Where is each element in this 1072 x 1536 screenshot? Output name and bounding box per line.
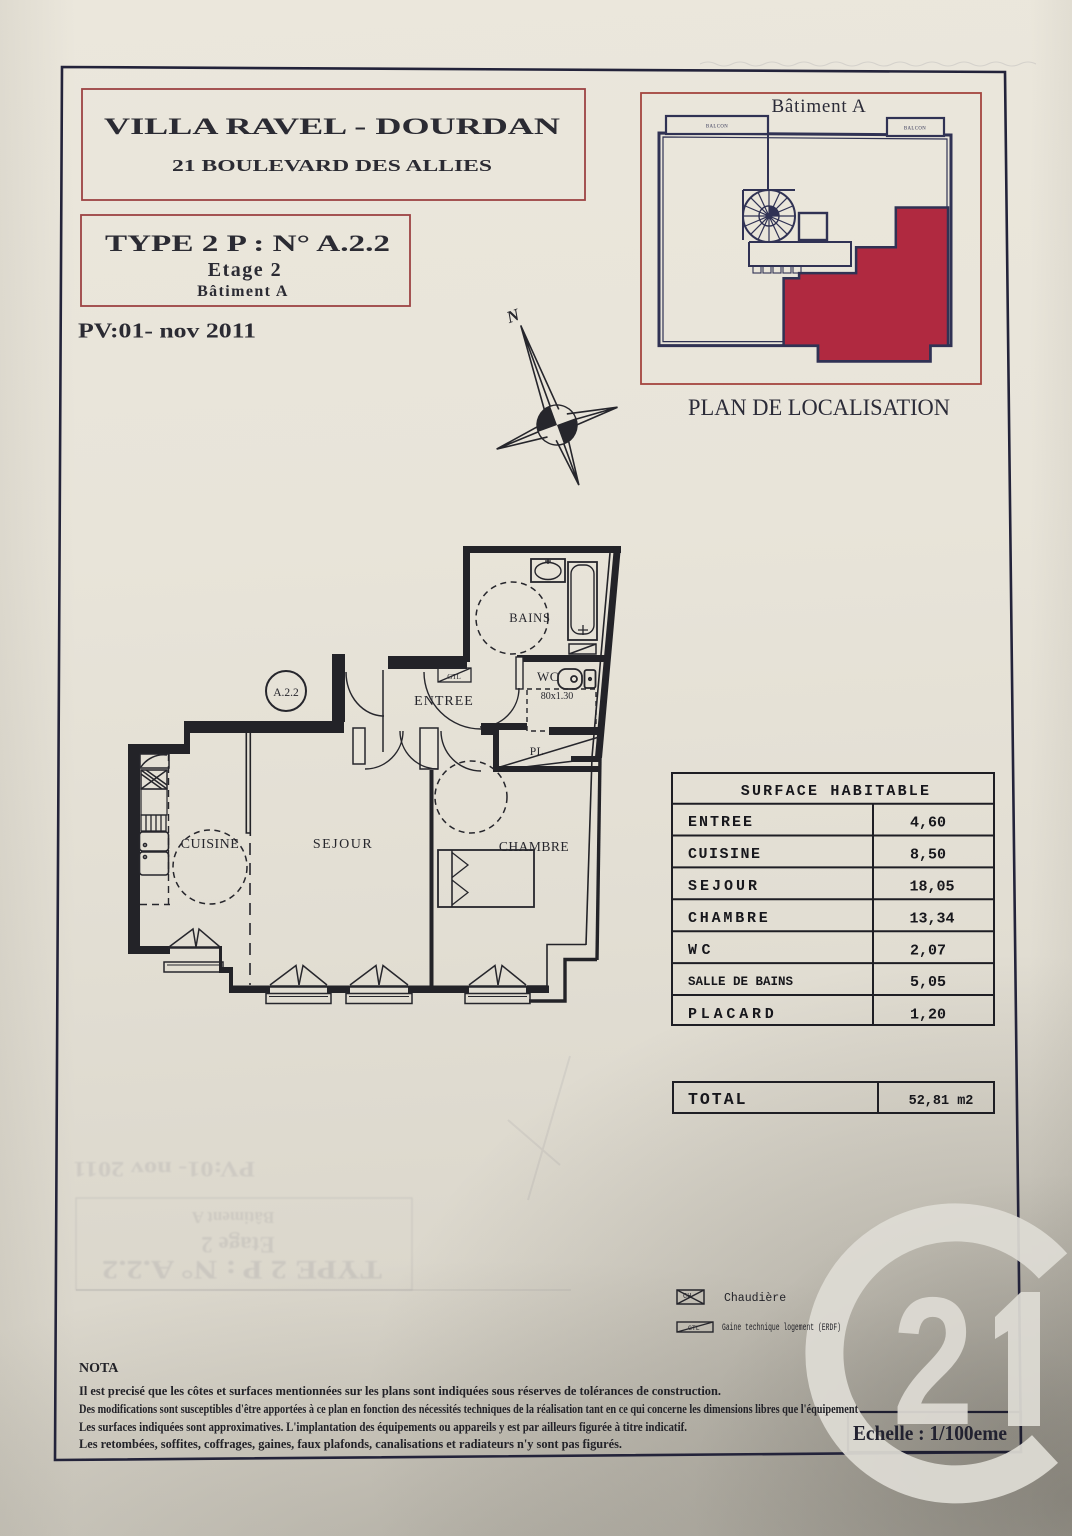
svg-text:13,34: 13,34 [909,911,954,928]
svg-text:Gaine technique logement (ERDF: Gaine technique logement (ERDF) [722,1322,841,1334]
svg-text:NOTA: NOTA [79,1361,119,1376]
svg-text:18,05: 18,05 [909,879,954,896]
svg-text:Les retombées, soffites, coffr: Les retombées, soffites, coffrages, gain… [79,1437,622,1451]
svg-text:Il est precisé que les côtes e: Il est precisé que les côtes et surfaces… [79,1384,721,1398]
svg-text:PV:01- nov 2011: PV:01- nov 2011 [78,319,256,343]
svg-text:PLACARD: PLACARD [688,1006,778,1023]
svg-text:WC: WC [537,669,559,684]
svg-text:PLAN DE LOCALISATION: PLAN DE LOCALISATION [688,395,950,420]
svg-text:GTL: GTL [447,673,461,681]
svg-text:N: N [503,305,523,328]
svg-text:CUISINE: CUISINE [688,846,762,863]
svg-text:8,50: 8,50 [910,847,946,864]
svg-text:1,20: 1,20 [910,1007,946,1024]
svg-text:5,05: 5,05 [910,974,946,991]
svg-text:A.2.2: A.2.2 [273,687,299,699]
svg-text:TOTAL: TOTAL [688,1090,748,1109]
svg-text:TYPE 2 P : N° A.2.2: TYPE 2 P : N° A.2.2 [105,231,390,256]
svg-text:2,07: 2,07 [910,943,946,960]
svg-text:Des modifications sont suscept: Des modifications sont susceptibles d'êt… [79,1402,859,1416]
svg-text:SEJOUR: SEJOUR [688,878,760,895]
svg-text:GTL: GTL [688,1325,700,1332]
svg-text:80x1.30: 80x1.30 [541,691,574,702]
svg-text:Echelle : 1/100eme: Echelle : 1/100eme [853,1421,1007,1445]
svg-text:WC: WC [688,942,715,959]
svg-text:CH: CH [683,1293,691,1301]
svg-text:PV:01- nov 2011: PV:01- nov 2011 [73,1157,255,1182]
svg-text:CUISINE: CUISINE [181,837,240,852]
svg-text:BALCON: BALCON [904,127,926,132]
svg-text:21 BOULEVARD DES ALLIES: 21 BOULEVARD DES ALLIES [172,156,492,175]
svg-text:CHAMBRE: CHAMBRE [688,910,771,927]
svg-text:Bâtiment A: Bâtiment A [771,96,866,117]
svg-text:Chaudière: Chaudière [724,1292,786,1305]
svg-text:Bâtiment A: Bâtiment A [197,283,289,300]
svg-text:Etage 2: Etage 2 [201,1232,274,1257]
svg-text:52,81 m2: 52,81 m2 [909,1094,974,1109]
svg-text:BALCON: BALCON [706,125,728,130]
svg-text:ENTREE: ENTREE [688,814,754,831]
svg-text:Etage 2: Etage 2 [208,259,282,281]
svg-text:BAINS: BAINS [509,611,551,625]
svg-text:Les surfaces indiquées sont ap: Les surfaces indiquées sont approximativ… [79,1420,687,1434]
svg-text:PL: PL [530,746,544,758]
svg-text:SEJOUR: SEJOUR [313,837,373,852]
svg-text:ENTREE: ENTREE [414,694,474,709]
svg-text:SALLE DE BAINS: SALLE DE BAINS [688,975,794,989]
svg-text:Bâtiment A: Bâtiment A [191,1208,274,1227]
svg-text:SURFACE HABITABLE: SURFACE HABITABLE [741,783,931,800]
svg-text:VILLA RAVEL - DOURDAN: VILLA RAVEL - DOURDAN [104,114,561,139]
svg-text:4,60: 4,60 [910,815,946,832]
svg-text:TYPE 2 P : N° A.2.2: TYPE 2 P : N° A.2.2 [102,1255,382,1284]
